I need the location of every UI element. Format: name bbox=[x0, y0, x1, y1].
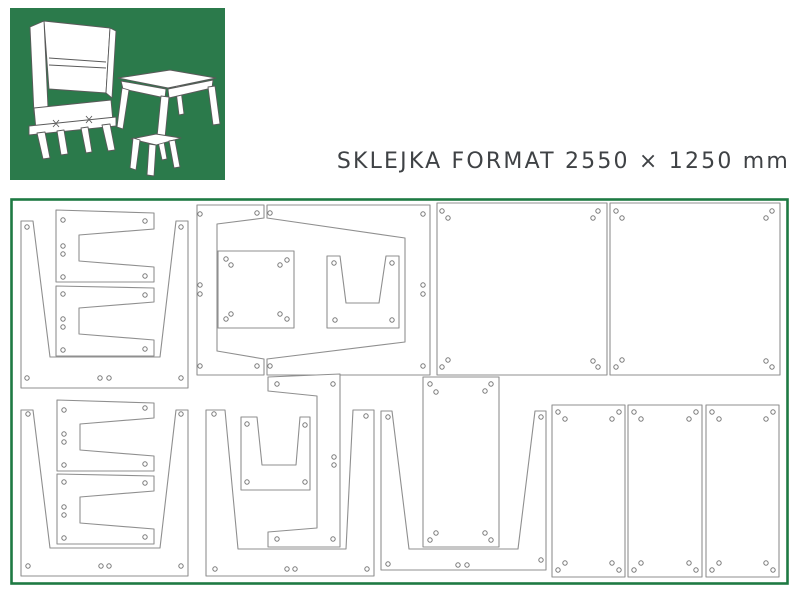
drill-hole bbox=[179, 412, 183, 416]
piece-stool-top bbox=[218, 251, 294, 328]
drill-hole bbox=[364, 414, 368, 418]
piece-large-panel-1 bbox=[437, 203, 607, 375]
drill-hole bbox=[331, 382, 335, 386]
drill-hole bbox=[617, 568, 621, 572]
drill-hole bbox=[62, 505, 66, 509]
drill-hole bbox=[440, 365, 444, 369]
drill-hole bbox=[224, 317, 228, 321]
drill-hole bbox=[107, 564, 111, 568]
drill-hole bbox=[143, 406, 147, 410]
drill-hole bbox=[639, 561, 643, 565]
drill-hole bbox=[539, 558, 543, 562]
drill-hole bbox=[365, 567, 369, 571]
drill-hole bbox=[539, 415, 543, 419]
drill-hole bbox=[278, 263, 282, 267]
drill-hole bbox=[26, 564, 30, 568]
drill-hole bbox=[268, 364, 272, 368]
drill-hole bbox=[596, 365, 600, 369]
drill-hole bbox=[61, 317, 65, 321]
drill-hole bbox=[710, 568, 714, 572]
drill-hole bbox=[563, 417, 567, 421]
drill-hole bbox=[632, 410, 636, 414]
drill-hole bbox=[610, 417, 614, 421]
drill-hole bbox=[614, 209, 618, 213]
drill-hole bbox=[268, 211, 272, 215]
drill-hole bbox=[556, 410, 560, 414]
drill-hole bbox=[275, 382, 279, 386]
piece-shelf-panel bbox=[423, 377, 499, 547]
drill-hole bbox=[25, 225, 29, 229]
drill-hole bbox=[245, 422, 249, 426]
drill-hole bbox=[717, 561, 721, 565]
drill-hole bbox=[428, 538, 432, 542]
page: { "header": { "title": "SKLEJKA FORMAT 2… bbox=[0, 0, 800, 600]
drill-hole bbox=[179, 225, 183, 229]
drill-hole bbox=[285, 258, 289, 262]
drill-hole bbox=[332, 463, 336, 467]
drill-hole bbox=[446, 216, 450, 220]
drill-hole bbox=[179, 376, 183, 380]
drill-hole bbox=[62, 463, 66, 467]
drill-hole bbox=[25, 376, 29, 380]
drill-hole bbox=[332, 261, 336, 265]
drill-hole bbox=[61, 252, 65, 256]
drill-hole bbox=[390, 318, 394, 322]
drill-hole bbox=[694, 410, 698, 414]
drill-hole bbox=[434, 531, 438, 535]
drill-hole bbox=[421, 292, 425, 296]
drill-hole bbox=[62, 536, 66, 540]
drill-hole bbox=[278, 312, 282, 316]
drill-hole bbox=[694, 568, 698, 572]
drill-hole bbox=[764, 216, 768, 220]
drill-hole bbox=[303, 423, 307, 427]
drill-hole bbox=[62, 432, 66, 436]
cutting-sheet-diagram bbox=[0, 0, 800, 600]
drill-hole bbox=[617, 410, 621, 414]
drill-hole bbox=[107, 376, 111, 380]
drill-hole bbox=[620, 358, 624, 362]
drill-hole bbox=[483, 531, 487, 535]
drill-hole bbox=[61, 292, 65, 296]
drill-hole bbox=[610, 561, 614, 565]
piece-door-panel-3 bbox=[706, 405, 779, 577]
drill-hole bbox=[764, 359, 768, 363]
drill-hole bbox=[632, 568, 636, 572]
drill-hole bbox=[596, 209, 600, 213]
drill-hole bbox=[764, 417, 768, 421]
drill-hole bbox=[61, 275, 65, 279]
drill-hole bbox=[255, 211, 259, 215]
drill-hole bbox=[285, 317, 289, 321]
drill-hole bbox=[421, 283, 425, 287]
drill-hole bbox=[143, 347, 147, 351]
drill-hole bbox=[143, 219, 147, 223]
drill-hole bbox=[591, 359, 595, 363]
drill-hole bbox=[434, 390, 438, 394]
drill-hole bbox=[483, 389, 487, 393]
drill-hole bbox=[563, 561, 567, 565]
drill-hole bbox=[285, 567, 289, 571]
drill-hole bbox=[331, 537, 335, 541]
drill-hole bbox=[771, 568, 775, 572]
piece-large-panel-2 bbox=[610, 203, 780, 375]
drill-hole bbox=[293, 567, 297, 571]
drill-hole bbox=[198, 212, 202, 216]
drill-hole bbox=[428, 382, 432, 386]
drill-hole bbox=[771, 410, 775, 414]
drill-hole bbox=[143, 462, 147, 466]
drill-hole bbox=[717, 417, 721, 421]
drill-hole bbox=[61, 325, 65, 329]
drill-hole bbox=[620, 216, 624, 220]
drill-hole bbox=[143, 293, 147, 297]
drill-hole bbox=[61, 244, 65, 248]
drill-hole bbox=[229, 263, 233, 267]
drill-hole bbox=[61, 218, 65, 222]
drill-hole bbox=[224, 257, 228, 261]
drill-hole bbox=[386, 415, 390, 419]
drill-hole bbox=[62, 408, 66, 412]
drill-hole bbox=[179, 564, 183, 568]
drill-hole bbox=[421, 212, 425, 216]
drill-hole bbox=[143, 535, 147, 539]
drill-hole bbox=[556, 568, 560, 572]
drill-hole bbox=[62, 440, 66, 444]
drill-hole bbox=[390, 261, 394, 265]
piece-door-panel-2 bbox=[628, 405, 702, 577]
drill-hole bbox=[98, 376, 102, 380]
drill-hole bbox=[26, 412, 30, 416]
drill-hole bbox=[614, 365, 618, 369]
drill-hole bbox=[440, 209, 444, 213]
drill-hole bbox=[61, 348, 65, 352]
drill-hole bbox=[198, 283, 202, 287]
drill-hole bbox=[143, 274, 147, 278]
drill-hole bbox=[687, 561, 691, 565]
drill-hole bbox=[770, 365, 774, 369]
drill-hole bbox=[62, 513, 66, 517]
drill-hole bbox=[62, 480, 66, 484]
drill-hole bbox=[386, 562, 390, 566]
drill-hole bbox=[332, 455, 336, 459]
piece-door-panel-1 bbox=[552, 405, 625, 577]
drill-hole bbox=[591, 216, 595, 220]
drill-hole bbox=[489, 382, 493, 386]
drill-hole bbox=[198, 292, 202, 296]
drill-hole bbox=[770, 209, 774, 213]
drill-hole bbox=[275, 537, 279, 541]
drill-hole bbox=[687, 417, 691, 421]
drill-hole bbox=[764, 561, 768, 565]
drill-hole bbox=[212, 412, 216, 416]
drill-hole bbox=[456, 563, 460, 567]
drill-hole bbox=[99, 564, 103, 568]
drill-hole bbox=[639, 417, 643, 421]
drill-hole bbox=[229, 312, 233, 316]
drill-hole bbox=[255, 364, 259, 368]
drill-hole bbox=[465, 563, 469, 567]
drill-hole bbox=[143, 481, 147, 485]
drill-hole bbox=[333, 318, 337, 322]
drill-hole bbox=[213, 567, 217, 571]
drill-hole bbox=[303, 480, 307, 484]
drill-hole bbox=[489, 538, 493, 542]
drill-hole bbox=[710, 410, 714, 414]
drill-hole bbox=[446, 358, 450, 362]
drill-hole bbox=[198, 364, 202, 368]
drill-hole bbox=[421, 364, 425, 368]
drill-hole bbox=[245, 480, 249, 484]
